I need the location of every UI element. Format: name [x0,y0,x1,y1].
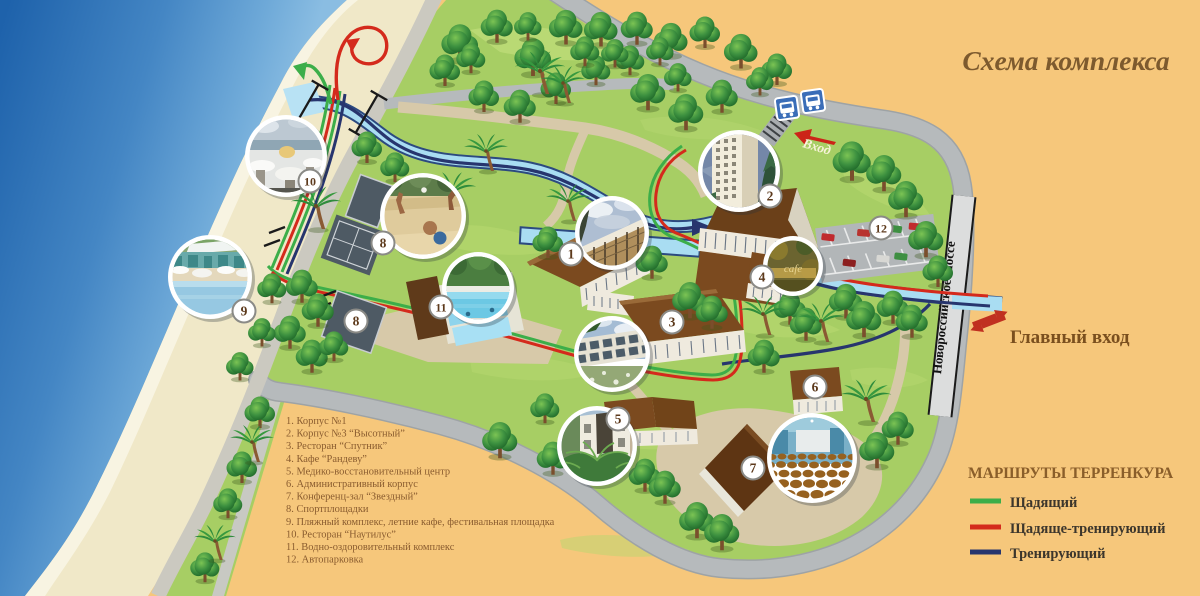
svg-text:5. Медико-восстановительный це: 5. Медико-восстановительный центр [286,466,450,477]
svg-text:8: 8 [380,236,387,251]
svg-text:12: 12 [875,222,887,236]
svg-text:8: 8 [353,314,360,329]
svg-text:9: 9 [241,304,248,319]
svg-text:8. Спортплощадки: 8. Спортплощадки [286,504,369,515]
svg-text:10: 10 [304,175,316,189]
svg-text:1. Корпус №1: 1. Корпус №1 [286,416,347,427]
svg-text:cafe: cafe [784,263,802,275]
svg-text:Главный вход: Главный вход [1010,327,1130,348]
svg-text:3: 3 [669,315,676,330]
svg-text:Щадяще-тренирующий: Щадяще-тренирующий [1010,521,1166,537]
svg-text:7: 7 [750,461,757,476]
svg-text:6: 6 [812,380,819,395]
svg-text:6. Административный корпус: 6. Административный корпус [286,479,418,490]
svg-text:Схема комплекса: Схема комплекса [962,45,1170,76]
svg-text:2: 2 [767,189,774,204]
svg-text:7. Конференц-зал “Звездный”: 7. Конференц-зал “Звездный” [286,492,418,503]
svg-text:10. Ресторан “Наутилус”: 10. Ресторан “Наутилус” [286,529,396,540]
svg-text:11. Водно-оздоровительный комп: 11. Водно-оздоровительный комплекс [286,542,455,553]
svg-text:3. Ресторан “Спутник”: 3. Ресторан “Спутник” [286,441,388,452]
svg-text:5: 5 [615,412,622,427]
svg-text:9. Пляжный комплекс, летние ка: 9. Пляжный комплекс, летние кафе, фестив… [286,517,555,528]
svg-text:МАРШРУТЫ ТЕРРЕНКУРА: МАРШРУТЫ ТЕРРЕНКУРА [968,465,1174,482]
svg-text:1: 1 [568,247,575,262]
svg-text:Тренирующий: Тренирующий [1010,546,1105,562]
svg-text:12. Автопарковка: 12. Автопарковка [286,555,364,566]
svg-text:11: 11 [435,301,446,315]
svg-text:2. Корпус №3 “Высотный”: 2. Корпус №3 “Высотный” [286,429,405,440]
svg-text:Щадящий: Щадящий [1010,495,1077,511]
svg-text:4. Кафе “Рандеву”: 4. Кафе “Рандеву” [286,454,367,465]
svg-text:4: 4 [759,270,766,285]
